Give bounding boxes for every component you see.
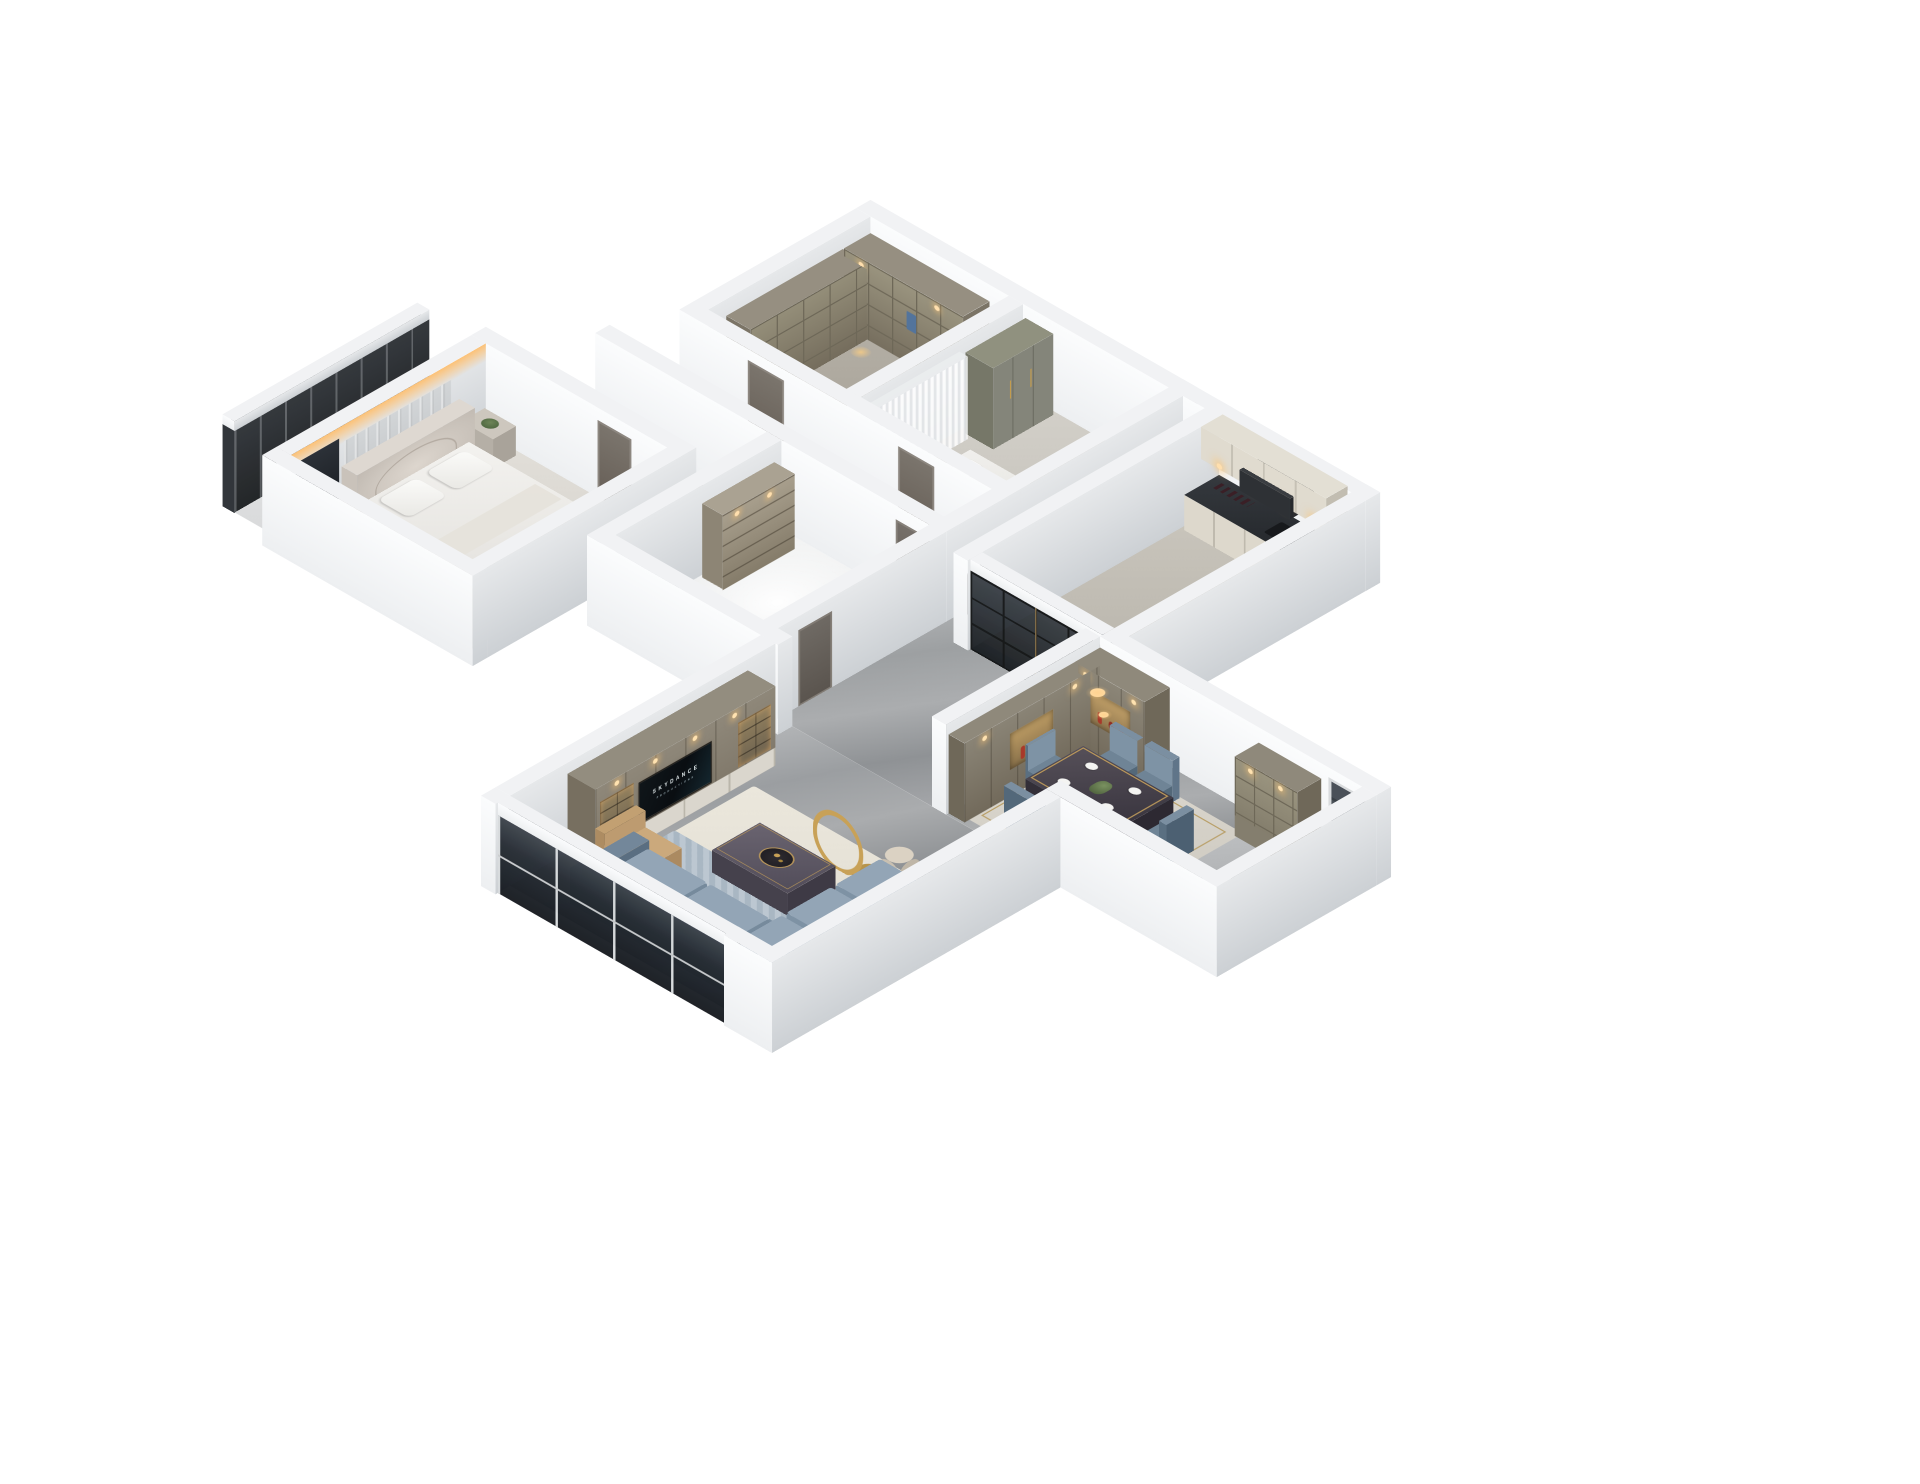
downlight: [1072, 683, 1077, 691]
wall-study-south-east: [778, 636, 792, 735]
downlight: [693, 734, 698, 742]
wardrobe-gold-handle: [1030, 368, 1031, 387]
wall-living-sw-post-south: [481, 796, 495, 895]
floorplan-3d-render: S K Y D A N C EP R O D U C T I O N S: [0, 0, 1920, 1484]
plant: [477, 416, 502, 430]
pendant-lamp-top: [1096, 711, 1110, 719]
wall-master-south-east: [473, 567, 487, 666]
downlight: [982, 734, 987, 742]
wall-dining-west-south: [932, 716, 946, 815]
wall-entry-east-south: [1202, 878, 1216, 977]
hanging-clothes-blue: [907, 311, 917, 335]
wall-living-south-solid-east: [772, 954, 786, 1053]
display-cabinet-dining-west-south: [949, 734, 965, 822]
wardrobe-bedroom2-south: [965, 352, 993, 450]
downlight: [732, 712, 737, 720]
wall-dining-north-east: [1377, 787, 1391, 886]
downlight: [653, 757, 658, 765]
shelf-warm-light: [735, 510, 740, 518]
shelf-warm-light: [934, 304, 939, 312]
downlight: [1278, 785, 1283, 793]
balcony-rail-glass-south: [223, 424, 235, 513]
pendant-lamp-top: [1087, 686, 1109, 698]
downlight: [1248, 768, 1253, 776]
shelf-warm-light: [767, 491, 772, 499]
downlight: [1131, 699, 1136, 707]
downlight: [614, 779, 619, 787]
bookshelf-study-south: [702, 503, 722, 590]
wall-kitchen-west-south: [953, 552, 967, 651]
wardrobe-gold-handle: [1010, 380, 1011, 399]
